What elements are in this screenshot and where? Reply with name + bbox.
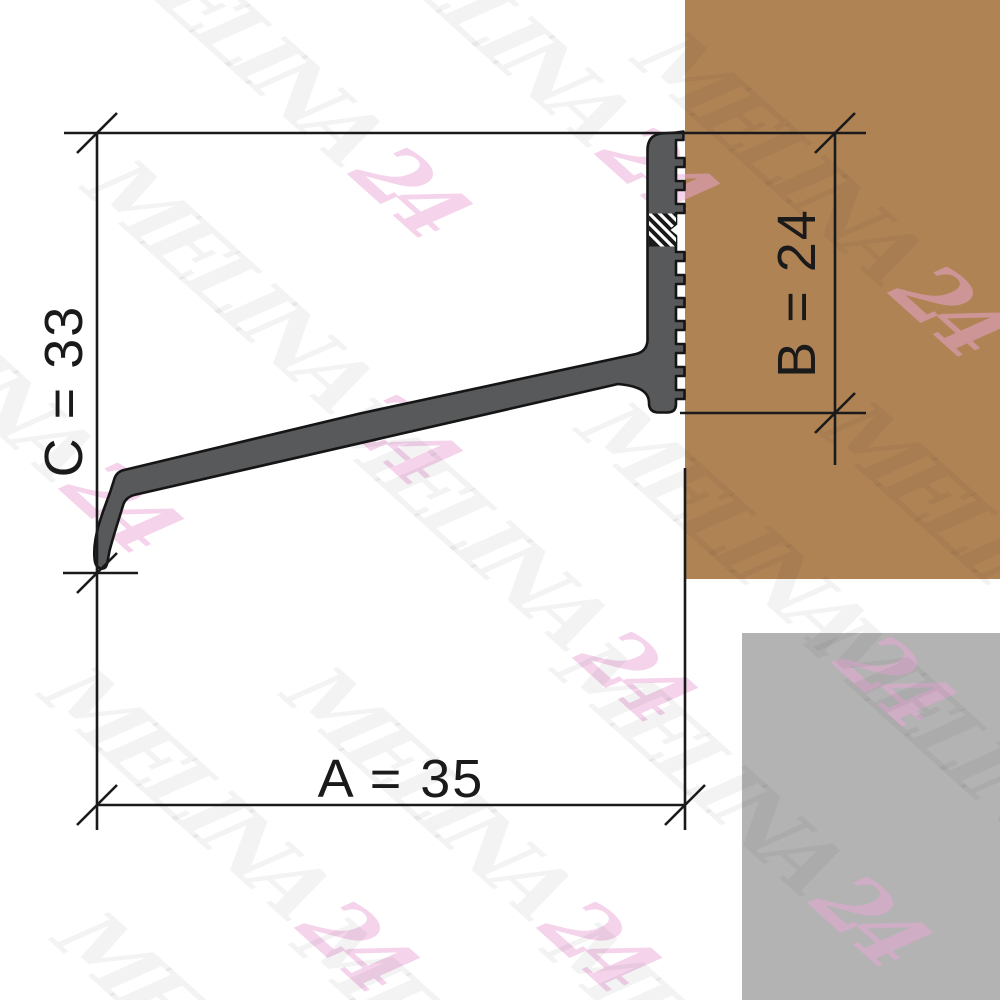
dimension-label-a: A = 35 [291,749,511,809]
dimension-label-c: C = 33 [34,281,94,501]
profile-outline [94,132,684,569]
technical-drawing-canvas: MELINA24 MELINA24 MELINA24 MELINA24 MELI… [0,0,1000,1000]
dimension-label-b: B = 24 [767,183,827,403]
profile-cross-section-drawing [0,0,1000,1000]
